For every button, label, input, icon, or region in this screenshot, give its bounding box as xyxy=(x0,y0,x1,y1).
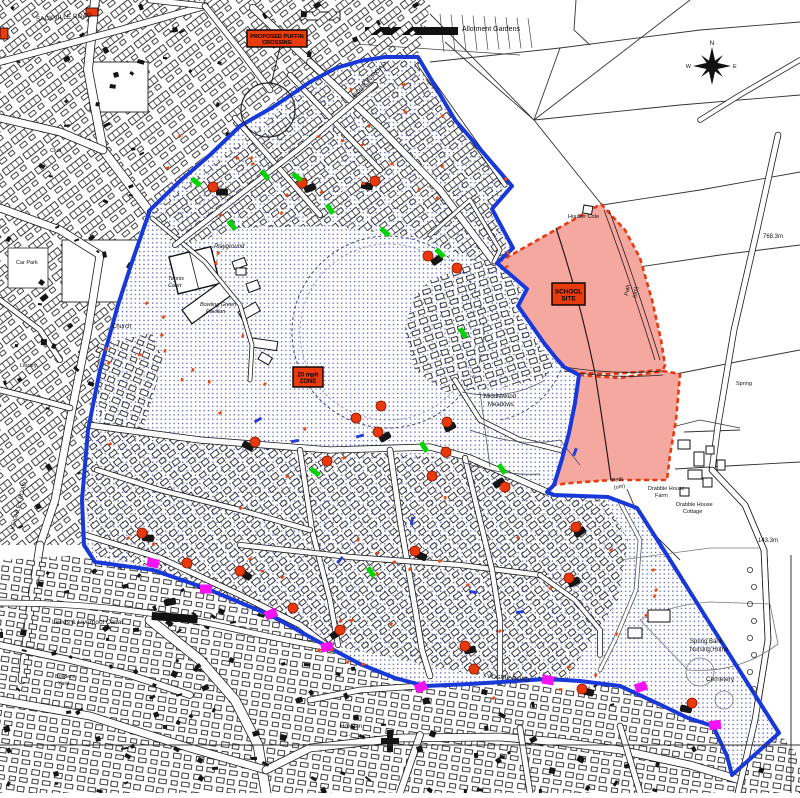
svg-text:...: ... xyxy=(345,732,350,738)
svg-text:PROPOSED PUFFIN: PROPOSED PUFFIN xyxy=(250,34,303,40)
svg-text:Houber Cote: Houber Cote xyxy=(568,214,599,220)
svg-text:N: N xyxy=(710,40,715,47)
svg-text:Club: Club xyxy=(50,148,61,154)
svg-text:SITE: SITE xyxy=(561,296,576,303)
svg-text:Tennis: Tennis xyxy=(168,276,184,282)
svg-text:Leeds & Liverpool Canal: Leeds & Liverpool Canal xyxy=(52,619,123,626)
svg-text:143.3m: 143.3m xyxy=(758,538,778,544)
svg-text:Bowling Green: Bowling Green xyxy=(200,302,236,308)
svg-text:W: W xyxy=(686,64,692,70)
svg-text:Farm: Farm xyxy=(655,493,668,499)
svg-text:Howden: Howden xyxy=(340,724,362,730)
svg-text:Drabble House: Drabble House xyxy=(648,486,685,492)
svg-text:Spring: Spring xyxy=(736,381,752,387)
svg-text:E: E xyxy=(733,64,737,70)
svg-text:768.3m: 768.3m xyxy=(763,234,783,240)
svg-text:Allotment Gardens: Allotment Gardens xyxy=(462,26,520,33)
svg-text:Middlewood: Middlewood xyxy=(484,394,516,400)
svg-text:20 mph: 20 mph xyxy=(297,373,318,379)
svg-text:Cemetery: Cemetery xyxy=(706,676,735,683)
svg-text:Spring Bank: Spring Bank xyxy=(690,639,724,645)
svg-text:Court: Court xyxy=(168,283,182,289)
svg-text:Pavilion: Pavilion xyxy=(206,309,225,315)
svg-text:CROSSING: CROSSING xyxy=(262,40,292,46)
svg-text:Nursing Home: Nursing Home xyxy=(690,647,729,653)
svg-text:Church: Church xyxy=(112,324,131,330)
svg-text:ZONE: ZONE xyxy=(300,379,317,385)
svg-text:Drabble House: Drabble House xyxy=(676,502,713,508)
svg-text:SCHOOL: SCHOOL xyxy=(555,289,582,296)
svg-text:Playground: Playground xyxy=(214,244,245,250)
svg-text:Car Park: Car Park xyxy=(16,260,38,266)
svg-text:Meadows: Meadows xyxy=(488,402,514,408)
svg-text:Yard: Yard xyxy=(58,681,69,687)
svg-text:Cottage: Cottage xyxy=(683,509,702,515)
svg-text:Library: Library xyxy=(20,363,37,369)
svg-text:Builders: Builders xyxy=(55,674,75,680)
